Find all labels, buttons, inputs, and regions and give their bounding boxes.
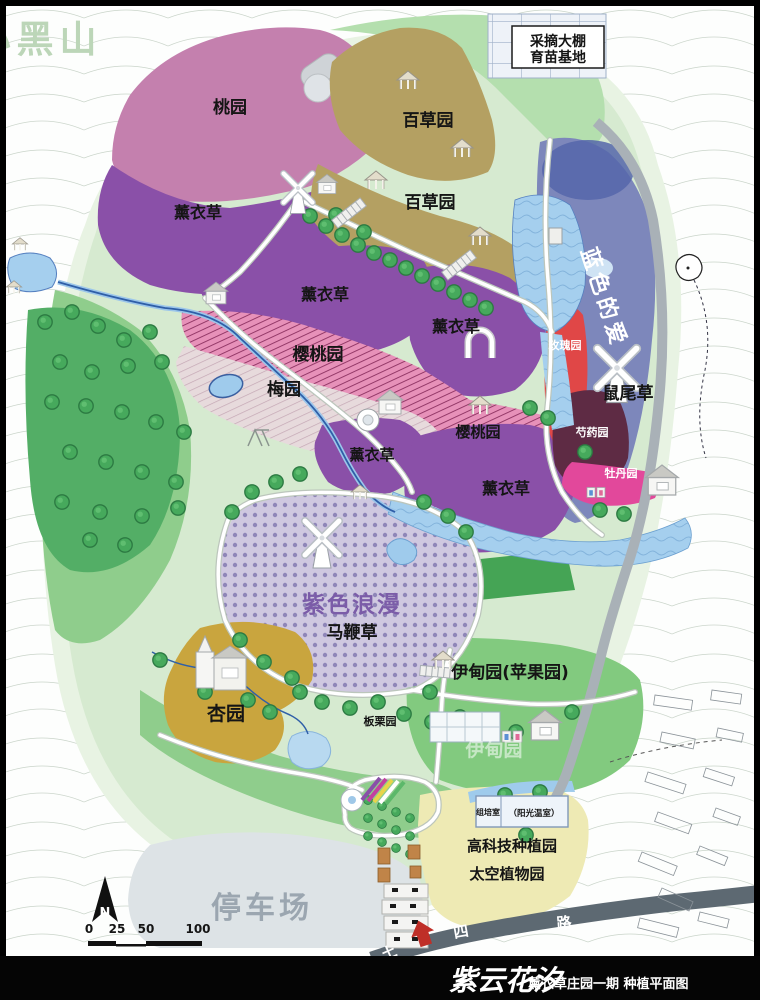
map-canvas: N 0 25 50 100 小黑山 采摘大棚 育苗基地 桃园 薰衣草 百草园 百… [0, 0, 760, 1000]
tree-icon [233, 633, 247, 647]
fountain-center [363, 415, 373, 425]
tree-icon [143, 325, 157, 339]
scale-tick: 25 [109, 922, 126, 936]
tree-icon [257, 655, 271, 669]
tree-icon [171, 501, 185, 515]
eden-label: 伊甸园(苹果园) [450, 662, 569, 683]
tree-icon [343, 701, 357, 715]
lavender-label-3: 薰衣草 [432, 317, 480, 336]
tree-icon [565, 705, 579, 719]
scale-tick: 50 [138, 922, 155, 936]
tree-icon [367, 246, 381, 260]
scale-tick: 0 [85, 922, 93, 936]
plum-label: 梅园 [267, 379, 301, 400]
space-garden-label: 太空植物园 [469, 865, 544, 883]
verbena-label: 马鞭草 [327, 622, 378, 643]
tree-icon [263, 705, 277, 719]
pond-chestnut [288, 731, 331, 768]
lavender-label-2: 薰衣草 [301, 285, 349, 304]
romance-label: 紫色浪漫 [302, 591, 402, 618]
tree-icon [99, 455, 113, 469]
dock-hut-icon [549, 228, 562, 244]
tree-icon [245, 485, 259, 499]
tree-icon [118, 538, 132, 552]
tree-icon [463, 293, 477, 307]
tree-icon [65, 305, 79, 319]
peach-label: 桃园 [213, 97, 247, 118]
tree-icon [351, 238, 365, 252]
tree-icon [423, 685, 437, 699]
silo-top-icon [304, 74, 332, 102]
sun-greenhouse-label: （阳光温室） [508, 808, 559, 819]
tree-icon [115, 405, 129, 419]
tree-icon [578, 445, 592, 459]
tree-icon [293, 467, 307, 481]
tree-icon [117, 333, 131, 347]
tree-icon [399, 261, 413, 275]
tree-icon [55, 495, 69, 509]
title-subtitle: 薰衣草庄园一期 种植平面图 [528, 976, 689, 992]
tree-icon [149, 415, 163, 429]
tree-icon [38, 315, 52, 329]
planting-plan-map: N 0 25 50 100 小黑山 采摘大棚 育苗基地 桃园 薰衣草 百草园 百… [0, 0, 760, 1000]
nursery-label-line2: 育苗基地 [530, 49, 586, 66]
cherry-label-1: 樱桃园 [293, 344, 344, 365]
tree-icon [417, 495, 431, 509]
herb-label-2: 百草园 [405, 193, 456, 213]
tree-icon [293, 685, 307, 699]
parking-label: 停车场 [211, 891, 313, 926]
tree-icon [85, 365, 99, 379]
tree-icon [364, 814, 373, 823]
scale-tick: 100 [185, 922, 210, 936]
lavender-label-4: 薰衣草 [349, 446, 394, 464]
tree-icon [135, 465, 149, 479]
tree-icon [53, 355, 67, 369]
tree-icon [91, 319, 105, 333]
herb-label-1: 百草园 [403, 111, 454, 131]
tree-icon [378, 838, 387, 847]
compass-n-label: N [100, 906, 111, 921]
tree-icon [45, 395, 59, 409]
tree-icon [479, 301, 493, 315]
cherry-label-2: 樱桃园 [455, 423, 500, 441]
tree-icon [378, 820, 387, 829]
lavender-label-1: 薰衣草 [174, 203, 222, 222]
tree-icon [93, 505, 107, 519]
tree-icon [177, 425, 191, 439]
road-label-3: 路 [556, 913, 574, 932]
tree-icon [135, 509, 149, 523]
tree-icon [406, 832, 415, 841]
tree-icon [392, 844, 401, 853]
tree-icon [364, 832, 373, 841]
tree-peony-label: 牡丹园 [605, 466, 638, 480]
tree-icon [121, 359, 135, 373]
tree-icon [459, 525, 473, 539]
tissue-room-label: 组培室 [476, 807, 500, 817]
tree-icon [392, 808, 401, 817]
mountain-label: 小黑山 [0, 18, 103, 61]
sage-label: 鼠尾草 [603, 383, 654, 404]
tree-icon [155, 355, 169, 369]
tree-icon [617, 507, 631, 521]
tree-icon [153, 653, 167, 667]
tree-icon [79, 399, 93, 413]
tree-icon [441, 509, 455, 523]
tree-icon [357, 225, 371, 239]
tree-icon [63, 445, 77, 459]
tree-icon [371, 695, 385, 709]
tree-icon [431, 277, 445, 291]
peony-label: 芍药园 [576, 425, 609, 439]
nursery-label-line1: 采摘大棚 [529, 33, 586, 50]
road-label-2: 四 [452, 922, 470, 942]
lavender-label-5: 薰衣草 [482, 479, 530, 498]
tree-icon [335, 228, 349, 242]
tree-icon [593, 503, 607, 517]
tree-icon [392, 826, 401, 835]
tree-icon [83, 533, 97, 547]
tree-icon [383, 253, 397, 267]
tree-icon [315, 695, 329, 709]
tree-icon [541, 411, 555, 425]
plaza-center [348, 796, 356, 804]
tree-icon [415, 269, 429, 283]
tree-icon [169, 475, 183, 489]
tree-icon [406, 814, 415, 823]
chestnut-label: 板栗园 [364, 714, 397, 728]
tree-icon [225, 505, 239, 519]
rose-label: 玫瑰园 [549, 338, 582, 352]
apricot-label: 杏园 [206, 702, 245, 725]
eden-watermark: 伊甸园 [464, 738, 522, 761]
eden-greenhouse-icon [430, 712, 500, 742]
tree-icon [285, 671, 299, 685]
hightech-label: 高科技种植园 [467, 837, 557, 855]
tree-icon [447, 285, 461, 299]
tree-icon [269, 475, 283, 489]
tree-icon [523, 401, 537, 415]
tree-icon [397, 707, 411, 721]
